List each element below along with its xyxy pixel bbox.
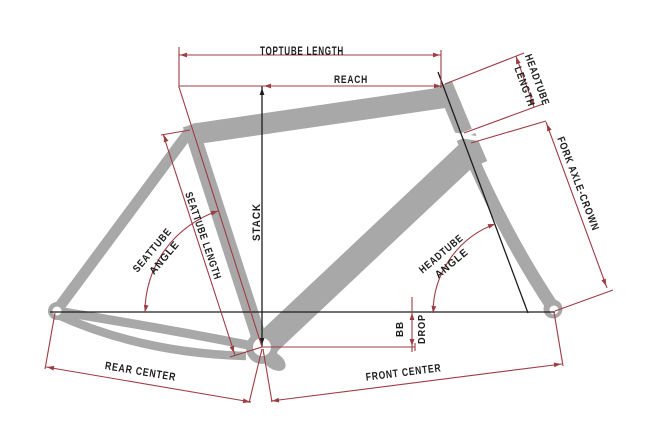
extension-line	[471, 121, 546, 143]
extension-line	[45, 313, 55, 369]
label-toptube-length: TOPTUBE LENGTH	[260, 46, 344, 58]
label-seattube-angle: SEATTUBE ANGLE	[131, 223, 188, 284]
dim-reach	[179, 84, 442, 89]
dim-front-center	[263, 312, 563, 403]
arrowhead	[433, 53, 440, 58]
label-headtube-length: HEADTUBE LENGTH	[509, 53, 553, 116]
toptube	[194, 97, 448, 134]
frame-geometry-diagram: TOPTUBE LENGTH REACH HEADTUBE LENGTH FOR…	[0, 0, 650, 433]
arrowhead	[545, 123, 552, 131]
frame-silhouette	[48, 84, 563, 375]
label-rear-center: REAR CENTER	[104, 360, 177, 384]
dimension-line	[546, 122, 607, 288]
arrowhead	[162, 134, 169, 142]
headset-gap	[449, 134, 481, 139]
label-bb-drop-bb: BB	[394, 321, 406, 337]
stack-arrow-top	[260, 88, 265, 95]
extension-line	[464, 104, 543, 133]
arrowhead	[514, 56, 521, 64]
arrowhead	[264, 84, 271, 89]
label-stack: STACK	[251, 203, 263, 241]
fork-blade	[472, 158, 552, 306]
arrowhead	[601, 279, 608, 287]
arrowhead	[180, 53, 187, 58]
arrowhead	[410, 313, 415, 320]
arrowhead	[143, 305, 149, 313]
extension-line	[554, 312, 563, 366]
diagram-canvas: TOPTUBE LENGTH REACH HEADTUBE LENGTH FOR…	[0, 0, 650, 433]
extension-line	[555, 290, 613, 311]
arrowhead	[410, 339, 415, 346]
label-fork-axle-crown: FORK AXLE-CROWN	[554, 135, 601, 233]
rear-axle-hole	[53, 307, 62, 316]
label-reach: REACH	[334, 74, 368, 86]
headtube	[444, 84, 464, 132]
seatstay-tube	[57, 132, 189, 310]
label-bb-drop-drop: DROP	[416, 314, 428, 344]
steering-axis-line	[438, 72, 528, 313]
